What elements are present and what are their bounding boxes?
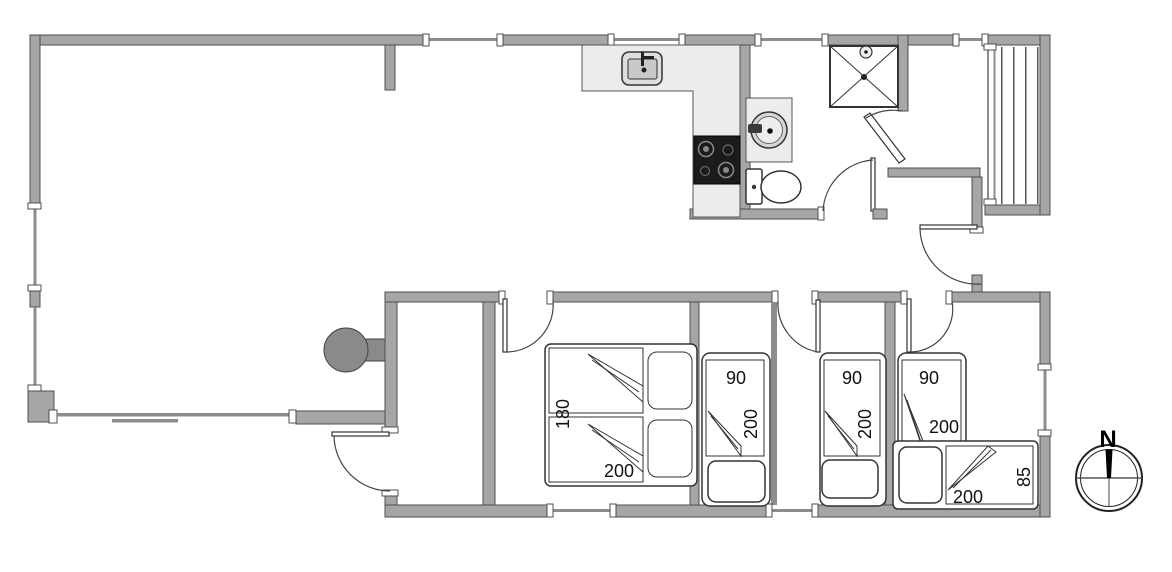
window-cap [289,410,296,423]
wall-segment [888,168,980,177]
corner-bed-horizontal: 200 85 [893,441,1038,509]
wood-stove [324,328,390,372]
deck-planks [1001,47,1039,204]
wall-segment [385,292,505,302]
window-cap [822,34,828,46]
floor-plan-drawing: 180 200 90 200 90 200 90 200 [0,0,1172,572]
window [1044,367,1047,430]
wall-segment [1040,436,1050,517]
window-cap [610,504,616,517]
bed-width-label: 85 [1014,467,1034,487]
double-bedroom-door-leaf [503,299,507,352]
wall-segment [818,292,907,302]
deck-plank [1013,47,1015,204]
bed-width-label: 90 [919,368,939,388]
bed-length-label: 200 [741,409,761,439]
entrance-door-leaf [920,225,977,229]
bathroom-door-leaf [871,158,875,211]
single-bedroom-door-leaf [816,300,820,352]
wall-segment [610,505,772,517]
wall-segment [503,35,610,45]
partition-wall [483,302,495,505]
window-cap [812,504,818,517]
window-cap [1038,364,1051,370]
wall-segment [898,35,908,111]
bed-length-label: 200 [855,409,875,439]
wall-segment [952,292,1050,302]
door-jamb [946,291,952,304]
bed-width-label: 90 [726,368,746,388]
window-cap [423,34,429,46]
toilet [746,169,801,204]
single-bed-2: 90 200 [820,353,886,506]
kitchen-sink [622,52,662,85]
deck-plank [1037,47,1039,204]
single-bedroom-door-arc [778,301,818,352]
sliding-door-panel [57,413,237,417]
deck-plank [1001,47,1003,204]
faucet-icon [641,56,654,59]
faucet-icon [748,124,762,133]
utility-room-door-arc [334,436,390,491]
drain-icon [642,68,647,73]
double-bed: 180 200 [545,344,697,486]
window [237,413,290,417]
window-cap [679,34,685,46]
bed-width-label: 90 [842,368,862,388]
duvet [648,420,692,477]
wall-segment [385,505,553,517]
wall-segment [30,291,40,307]
wall-segment [972,177,982,228]
window-cap [28,385,41,391]
toilet-flush-icon [752,185,756,189]
shower-door-leaf [864,113,905,163]
wall-segment [1040,292,1050,367]
window [610,38,685,41]
window [34,307,37,388]
bed-width-label: 180 [553,399,573,429]
toilet-bowl [761,171,801,203]
window [425,38,503,41]
kitchen [582,45,740,217]
window [553,509,610,512]
wall-stub [385,45,395,90]
floor-plan-page: 180 200 90 200 90 200 90 200 [0,0,1172,572]
utility-room-door-leaf [332,432,389,436]
window-cap [953,34,959,46]
corner-bedroom-door-leaf [907,299,911,352]
drain-icon [767,128,773,134]
wall-segment [1040,35,1050,215]
window-cap [1038,430,1051,436]
deck-plank [1025,47,1027,204]
door-jamb [901,291,907,304]
single-bed-1: 90 200 [702,353,770,506]
window-cap [28,285,41,291]
sliding-door-panel [112,419,178,423]
window-cap [28,203,41,209]
compass-needle-icon [1106,450,1113,479]
door-jamb [547,291,553,304]
window [772,509,818,512]
window-cap [755,34,761,46]
wall-segment [873,209,887,219]
shower-drain-icon [861,74,867,80]
deck-partition [994,45,996,205]
wall-segment [385,292,397,433]
wall-segment [685,35,757,45]
deck-partition [987,45,989,205]
window-cap [49,410,57,423]
bed-length-label: 200 [604,461,634,481]
shower-head-icon [864,50,868,54]
burner-icon [703,146,709,152]
bedside-cabinet [899,447,942,503]
bathroom-sink [746,98,792,162]
bedside-cabinet [822,460,878,498]
partition-wall [771,302,777,505]
duvet [648,352,692,409]
burner-icon [723,167,729,173]
compass-rose: N [1076,426,1142,511]
window-cap [547,504,553,517]
wall-segment [296,411,386,424]
window-cap [608,34,614,46]
wall-segment [553,292,778,302]
window-cap [497,34,503,46]
wood-stove-body [324,328,368,372]
compass-north-label: N [1099,426,1116,453]
wall-segment [30,35,40,207]
bathroom-door-arc [823,160,873,211]
window [34,207,37,288]
bed-length-label: 200 [953,487,983,507]
double-bedroom-door-arc [507,301,553,352]
shower [830,46,898,107]
window-cap [984,199,996,205]
wall-segment [30,35,425,45]
bedside-cabinet [708,461,765,502]
corner-bedroom-furniture: 90 200 200 85 [893,353,1038,509]
corner-bedroom-door-arc [911,301,953,352]
wall-segment [828,35,955,45]
stove-cooktop [694,136,740,184]
bed-length-label: 200 [929,417,959,437]
window-cap [766,504,772,517]
window [757,38,828,41]
window-cap [984,44,996,50]
